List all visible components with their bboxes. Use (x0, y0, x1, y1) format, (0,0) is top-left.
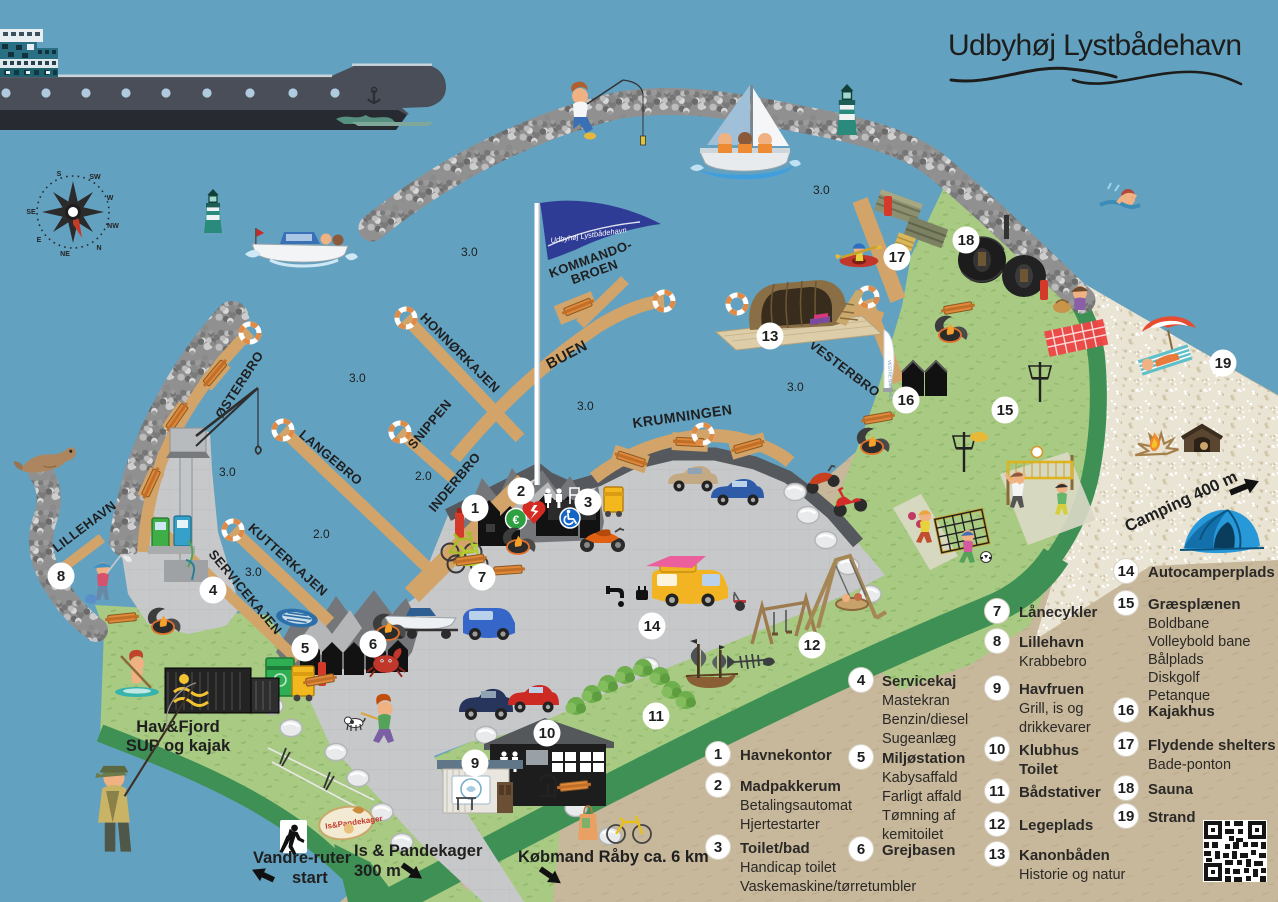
svg-text:2: 2 (517, 483, 525, 500)
svg-text:S: S (57, 171, 62, 178)
svg-text:3.0: 3.0 (349, 371, 366, 385)
svg-text:SE: SE (26, 209, 36, 216)
svg-text:Is & Pandekager: Is & Pandekager (354, 842, 483, 860)
svg-text:4: 4 (857, 672, 866, 689)
svg-text:Udbyhøj Lystbådehavn: Udbyhøj Lystbådehavn (948, 29, 1242, 62)
svg-text:Kabysaffald: Kabysaffald (882, 770, 958, 786)
svg-text:N: N (96, 245, 101, 252)
svg-text:Miljøstation: Miljøstation (882, 750, 965, 767)
svg-text:3.0: 3.0 (461, 245, 478, 259)
svg-text:Diskgolf: Diskgolf (1148, 670, 1201, 686)
svg-text:300 m: 300 m (354, 862, 401, 880)
svg-text:Hjertestarter: Hjertestarter (740, 817, 820, 833)
svg-text:8: 8 (993, 633, 1001, 650)
svg-text:3.0: 3.0 (219, 465, 236, 479)
svg-text:8: 8 (57, 568, 65, 585)
svg-text:NW: NW (107, 223, 119, 230)
svg-text:Havfruen: Havfruen (1019, 681, 1084, 698)
svg-text:13: 13 (762, 328, 779, 345)
svg-text:Strand: Strand (1148, 809, 1196, 826)
svg-text:Tømning af: Tømning af (882, 808, 956, 824)
svg-text:Historie og natur: Historie og natur (1019, 867, 1126, 883)
svg-text:Lillehavn: Lillehavn (1019, 634, 1084, 651)
svg-text:Krabbebro: Krabbebro (1019, 654, 1087, 670)
svg-text:3.0: 3.0 (245, 565, 262, 579)
svg-text:Bålplads: Bålplads (1148, 652, 1204, 668)
svg-text:Vaskemaskine/tørretumbler: Vaskemaskine/tørretumbler (740, 879, 916, 895)
svg-text:Klubhus: Klubhus (1019, 742, 1079, 759)
svg-text:19: 19 (1215, 355, 1232, 372)
svg-text:Legeplads: Legeplads (1019, 817, 1093, 834)
svg-text:Grejbasen: Grejbasen (882, 842, 955, 859)
svg-text:5: 5 (301, 640, 309, 657)
svg-text:12: 12 (804, 637, 821, 654)
svg-text:16: 16 (1118, 702, 1135, 719)
svg-text:Toilet: Toilet (1019, 761, 1058, 778)
svg-text:NE: NE (60, 251, 70, 258)
svg-text:Græsplænen: Græsplænen (1148, 596, 1241, 613)
svg-text:Hav&Fjord: Hav&Fjord (136, 718, 219, 736)
svg-text:Petanque: Petanque (1148, 688, 1210, 704)
svg-text:Autocamperplads: Autocamperplads (1148, 564, 1275, 581)
svg-text:2.0: 2.0 (415, 469, 432, 483)
svg-text:7: 7 (993, 603, 1001, 620)
svg-text:14: 14 (1118, 563, 1135, 580)
svg-text:6: 6 (857, 841, 865, 858)
svg-text:Volleybold bane: Volleybold bane (1148, 634, 1250, 650)
svg-text:Benzin/diesel: Benzin/diesel (882, 712, 968, 728)
svg-text:18: 18 (958, 232, 975, 249)
svg-text:14: 14 (644, 618, 661, 635)
svg-text:11: 11 (648, 708, 664, 725)
svg-text:9: 9 (471, 755, 479, 772)
svg-text:3.0: 3.0 (787, 380, 804, 394)
svg-text:Betalingsautomat: Betalingsautomat (740, 798, 852, 814)
svg-text:€: € (513, 513, 520, 527)
svg-text:3.0: 3.0 (577, 399, 594, 413)
svg-text:10: 10 (989, 741, 1006, 758)
svg-text:18: 18 (1118, 780, 1135, 797)
svg-text:Servicekaj: Servicekaj (882, 673, 956, 690)
svg-text:Mastekran: Mastekran (882, 693, 950, 709)
svg-text:Lånecykler: Lånecykler (1019, 604, 1098, 621)
svg-text:3: 3 (584, 494, 592, 511)
svg-text:19: 19 (1118, 808, 1135, 825)
svg-text:2.0: 2.0 (313, 527, 330, 541)
svg-text:15: 15 (1118, 595, 1135, 612)
svg-text:Sugeanlæg: Sugeanlæg (882, 731, 956, 747)
svg-text:3: 3 (714, 839, 722, 856)
svg-text:16: 16 (898, 392, 915, 409)
svg-text:Sauna: Sauna (1148, 781, 1194, 798)
svg-text:Toilet/bad: Toilet/bad (740, 840, 810, 857)
svg-text:2: 2 (714, 777, 722, 794)
svg-text:Farligt affald: Farligt affald (882, 789, 962, 805)
svg-text:3.0: 3.0 (813, 183, 830, 197)
svg-text:Flydende shelters: Flydende shelters (1148, 737, 1276, 754)
svg-text:drikkevarer: drikkevarer (1019, 720, 1091, 736)
svg-text:Boldbane: Boldbane (1148, 616, 1209, 632)
svg-text:Vandre-ruter: Vandre-ruter (253, 849, 352, 867)
svg-text:W: W (107, 195, 114, 202)
svg-text:Bådstativer: Bådstativer (1019, 784, 1101, 801)
svg-text:Kanonbåden: Kanonbåden (1019, 847, 1110, 864)
svg-text:17: 17 (889, 249, 906, 266)
svg-text:SUP og kajak: SUP og kajak (126, 737, 231, 755)
svg-text:Handicap toilet: Handicap toilet (740, 860, 836, 876)
svg-text:E: E (37, 237, 42, 244)
svg-text:1: 1 (714, 746, 722, 763)
svg-text:Købmand Råby ca. 6 km: Købmand Råby ca. 6 km (518, 848, 709, 866)
svg-text:Grill, is og: Grill, is og (1019, 701, 1083, 717)
svg-text:17: 17 (1118, 736, 1135, 753)
svg-text:13: 13 (989, 846, 1006, 863)
svg-text:4: 4 (209, 582, 218, 599)
svg-text:Kajakhus: Kajakhus (1148, 703, 1215, 720)
svg-text:Havnekontor: Havnekontor (740, 747, 832, 764)
svg-text:9: 9 (993, 680, 1001, 697)
svg-text:12: 12 (989, 816, 1006, 833)
svg-text:1: 1 (471, 500, 479, 517)
svg-text:SW: SW (89, 174, 101, 181)
svg-text:start: start (292, 869, 328, 887)
svg-text:Madpakkerum: Madpakkerum (740, 778, 841, 795)
svg-text:7: 7 (478, 569, 486, 586)
svg-text:Bade-ponton: Bade-ponton (1148, 757, 1231, 773)
svg-text:10: 10 (539, 725, 556, 742)
svg-text:15: 15 (997, 402, 1014, 419)
svg-text:11: 11 (989, 783, 1005, 800)
svg-text:kemitoilet: kemitoilet (882, 827, 943, 843)
svg-text:5: 5 (857, 749, 865, 766)
svg-text:6: 6 (369, 636, 377, 653)
